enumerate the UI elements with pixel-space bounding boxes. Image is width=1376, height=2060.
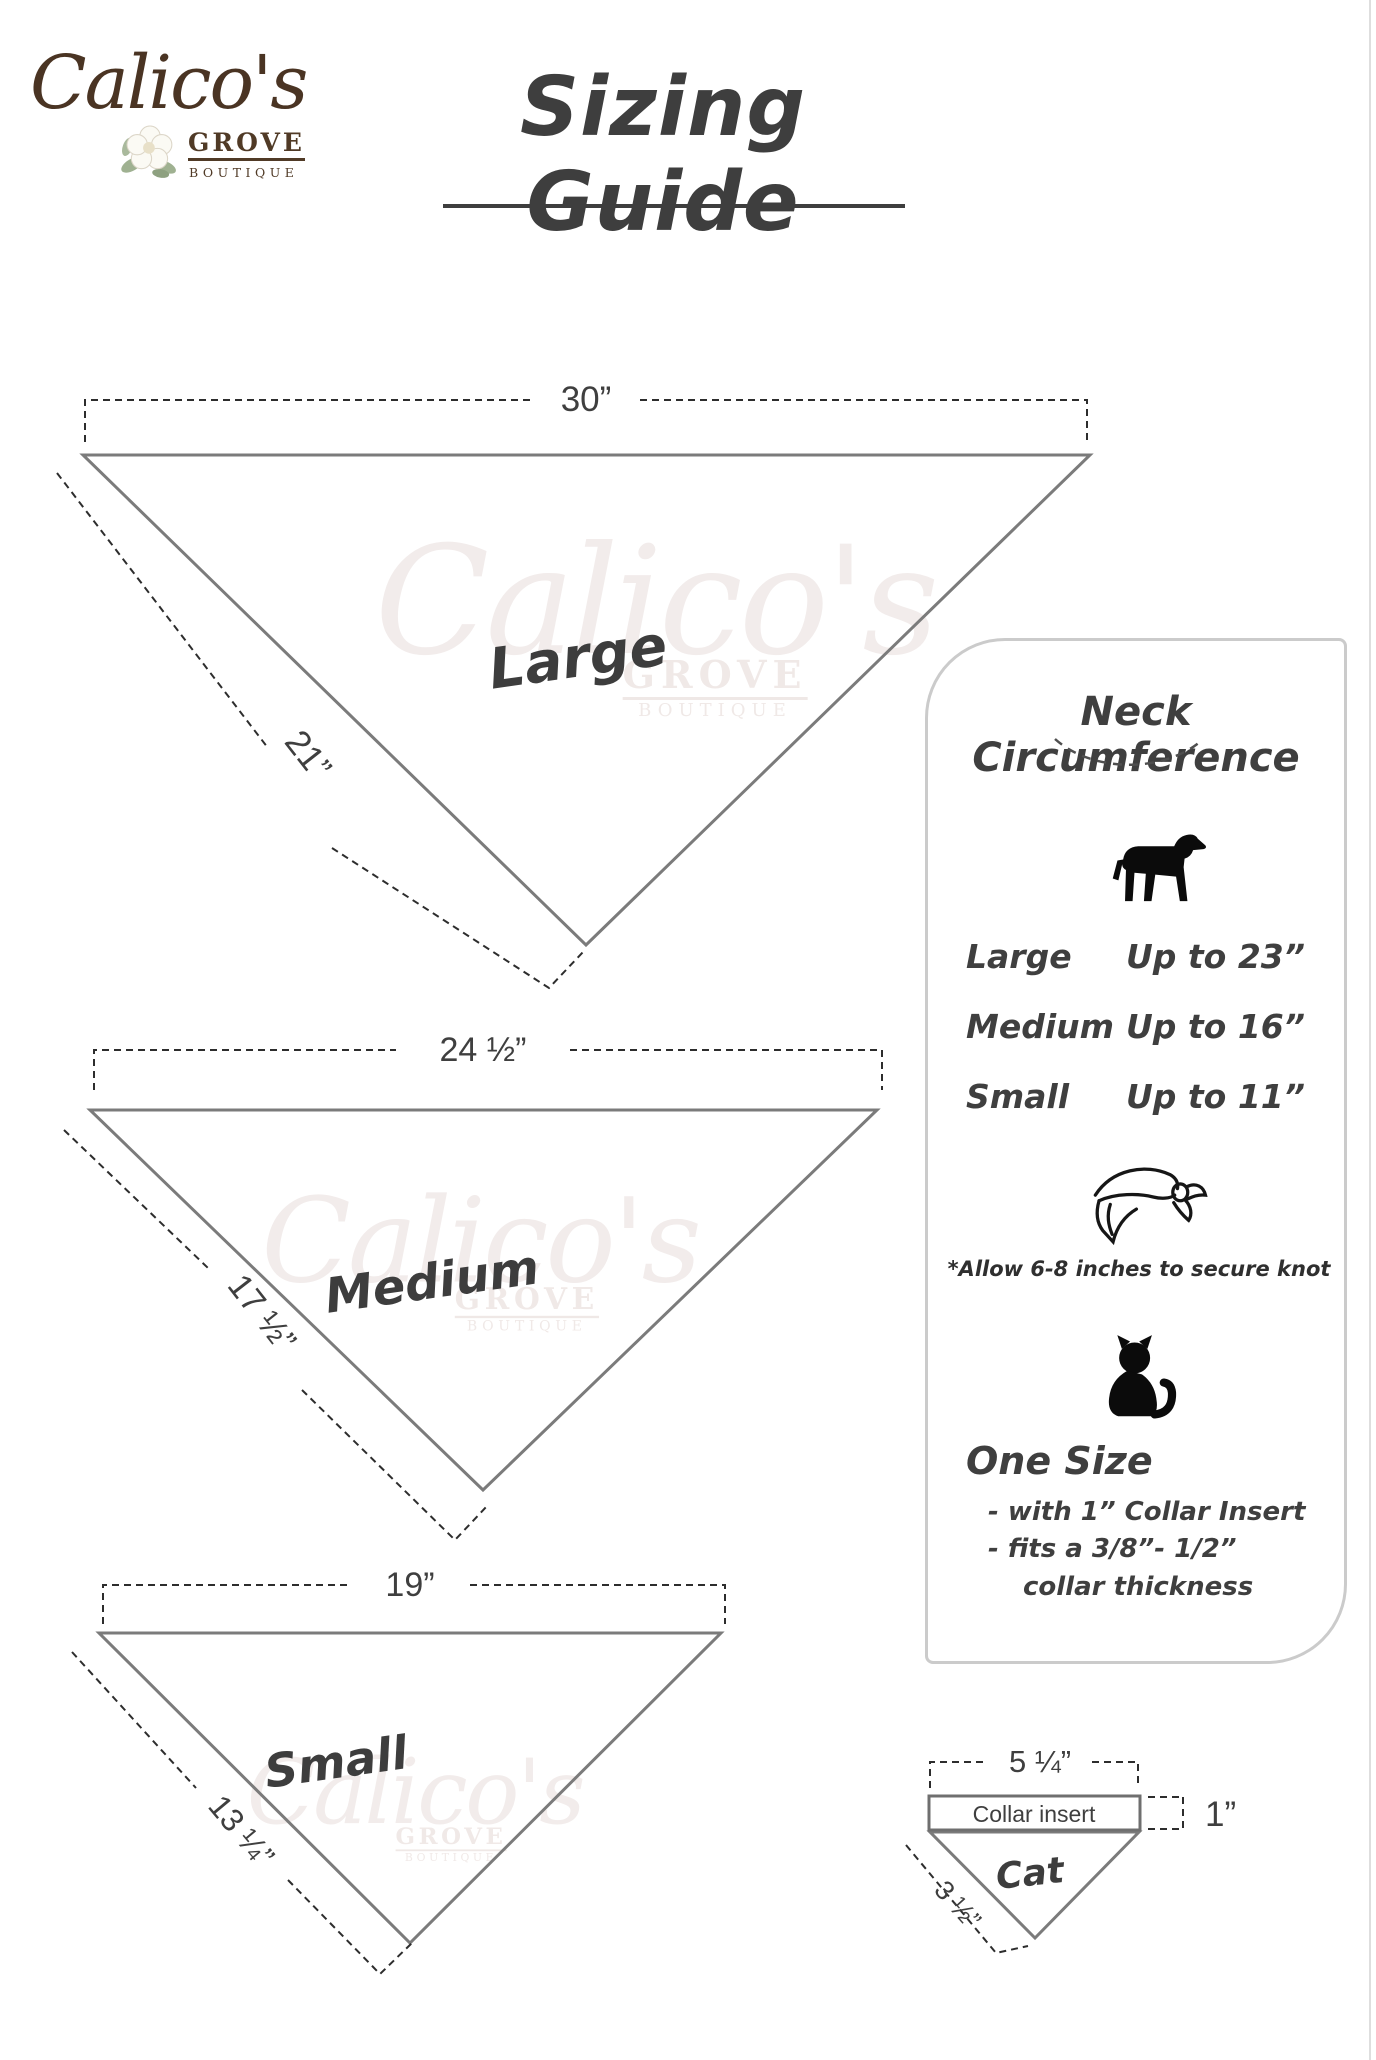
large-top-width-label: 30” [561, 380, 612, 419]
insert-height-label: 1” [1205, 1795, 1236, 1834]
size-row-large: Large Up to 23” [966, 937, 1316, 983]
medium-side-length-label: 17 ½” [220, 1267, 303, 1359]
knot-allowance-note: *Allow 6-8 inches to secure knot [938, 1257, 1340, 1281]
small-top-width-label: 19” [385, 1566, 434, 1604]
cat-bandana-shape: 5 ¼” Collar insert 1” 3 ½” [906, 1744, 1236, 1953]
dog-icon [1108, 829, 1212, 909]
one-size-line-2: - fits a 3/8”- 1/2” [988, 1534, 1237, 1564]
neck-circumference-panel: Neck Circumference Large Up to 23” Mediu… [925, 638, 1347, 1664]
cat-icon [1100, 1331, 1182, 1425]
size-row-medium: Medium Up to 16” [966, 1007, 1316, 1053]
heading-underline-swoosh [928, 641, 1350, 821]
tied-bandana-icon [1086, 1159, 1212, 1249]
one-size-line-3: collar thickness [1023, 1572, 1253, 1602]
cat-size-label: Cat [994, 1850, 1066, 1898]
sizing-guide-page: Calico's GROVE BOUTIQUE Sizing Guide Cal… [0, 0, 1376, 2060]
collar-insert-label: Collar insert [973, 1801, 1096, 1827]
medium-top-width-label: 24 ½” [440, 1031, 527, 1069]
cat-top-width-label: 5 ¼” [1009, 1744, 1071, 1779]
one-size-line-1: - with 1” Collar Insert [988, 1497, 1305, 1527]
size-row-small: Small Up to 11” [966, 1077, 1316, 1123]
large-side-length-label: 21” [277, 723, 339, 787]
one-size-heading: One Size [966, 1439, 1153, 1483]
page-edge-line [1369, 0, 1371, 2060]
